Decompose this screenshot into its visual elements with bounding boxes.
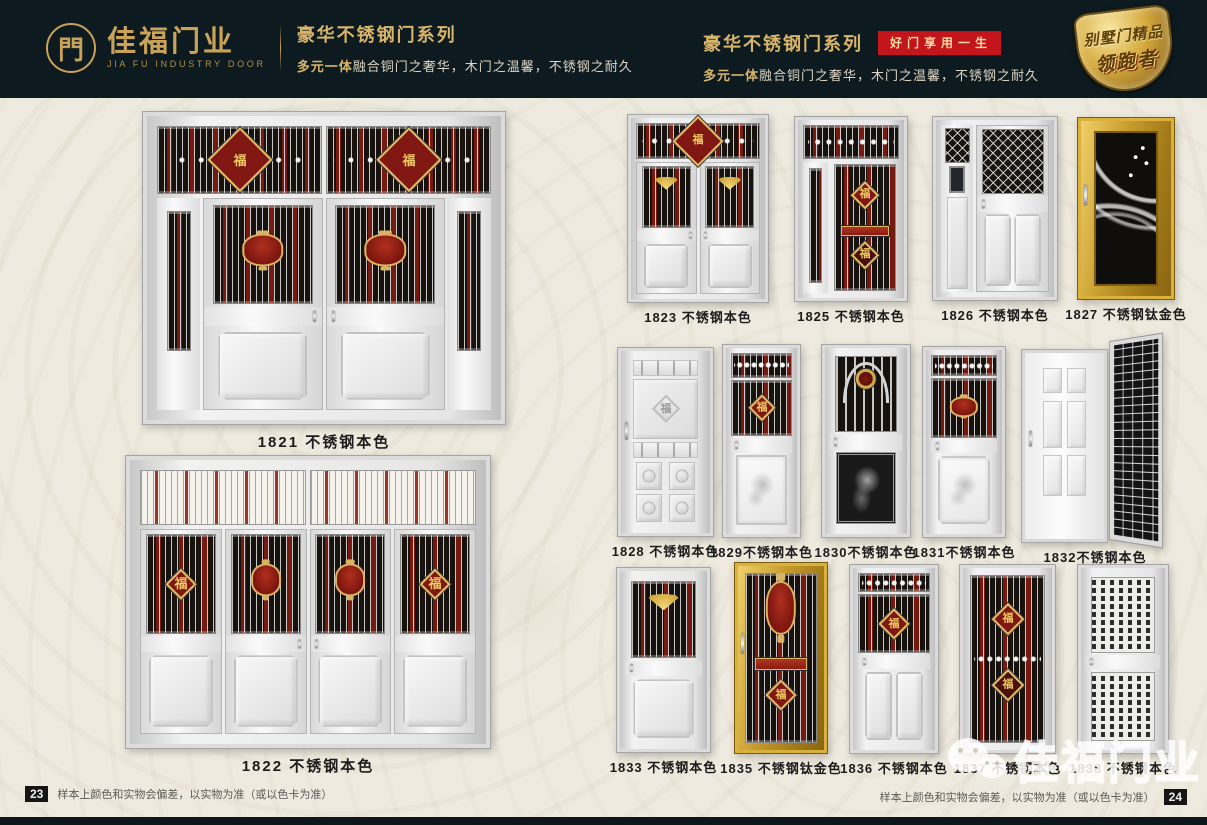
door-image-1829: 福 — [723, 345, 800, 537]
wechat-icon — [948, 738, 1012, 792]
series-subtitle-right: 多元一体融合铜门之奢华，木门之温馨，不锈钢之耐久 — [703, 65, 1039, 84]
disclaimer-left: 样本上颜色和实物会偏差，以实物为准（或以色卡为准） — [57, 786, 332, 802]
door-card-1823: 福 1823 不锈钢本色 — [628, 115, 768, 326]
footer-left: 23 样本上颜色和实物会偏差，以实物为准（或以色卡为准） — [25, 786, 332, 802]
door-label-1830: 1830不锈钢本色 — [815, 542, 918, 561]
door-card-1831: 1831不锈钢本色 — [923, 347, 1005, 561]
door-1827 — [1078, 118, 1174, 299]
catalog-page: 門 佳福门业 JIA FU INDUSTRY DOOR 豪华不锈钢门系列 多元一… — [0, 0, 1207, 825]
door-leaf-open-screen — [1110, 334, 1163, 548]
door-1823: 福 — [628, 115, 768, 302]
door-card-1832: 1832不锈钢本色 — [1022, 342, 1168, 566]
door-1829: 福 — [723, 345, 800, 537]
door-label-1829: 1829不锈钢本色 — [710, 542, 813, 561]
door-1826 — [933, 117, 1057, 300]
door-card-1827: 1827 不锈钢钛金色 — [1078, 118, 1174, 323]
series-subtitle-left-em: 多元一体 — [297, 59, 353, 74]
door-card-1830: 1830不锈钢本色 — [822, 345, 910, 561]
series-title-row: 豪华不锈钢门系列 好门享用一生 — [703, 30, 1039, 56]
bottom-bar — [0, 817, 1207, 825]
series-subtitle-left-rest: 融合铜门之奢华，木门之温馨，不锈钢之耐久 — [353, 59, 633, 74]
door-1830 — [822, 345, 910, 537]
series-subtitle-right-rest: 融合铜门之奢华，木门之温馨，不锈钢之耐久 — [759, 68, 1039, 83]
brand-block: 門 佳福门业 JIA FU INDUSTRY DOOR 豪华不锈钢门系列 多元一… — [46, 21, 633, 75]
door-image-1822: 福 福 — [126, 456, 490, 748]
door-1831 — [923, 347, 1005, 537]
door-image-1821: 福 福 — [143, 112, 505, 424]
door-1825: 福福 — [795, 117, 907, 301]
slogan-badge: 好门享用一生 — [878, 31, 1001, 55]
door-image-1830 — [822, 345, 910, 537]
door-label-1822: 1822 不锈钢本色 — [242, 755, 375, 776]
door-card-1822: 福 福 1822 不锈钢本色 — [126, 456, 490, 776]
door-label-1831: 1831不锈钢本色 — [913, 542, 1016, 561]
door-image-1836: 福 — [850, 565, 938, 753]
door-label-1832: 1832不锈钢本色 — [1044, 547, 1147, 566]
brand-name-en: JIA FU INDUSTRY DOOR — [107, 59, 266, 69]
door-image-1823: 福 — [628, 115, 768, 302]
watermark: 佳福门业 — [948, 738, 1202, 792]
logo-door-glyph: 門 — [58, 30, 84, 67]
catalog-body: 23 样本上颜色和实物会偏差，以实物为准（或以色卡为准） 样本上颜色和实物会偏差… — [0, 98, 1207, 817]
door-1836: 福 — [850, 565, 938, 753]
door-label-1826: 1826 不锈钢本色 — [941, 305, 1049, 324]
door-1821: 福 福 — [143, 112, 505, 424]
door-leaf-closed — [1022, 350, 1107, 542]
door-card-1826: 1826 不锈钢本色 — [933, 117, 1057, 324]
award-shield-badge: 别墅门精品 领跑者 — [1054, 0, 1196, 102]
door-card-1821: 福 福 1821 不锈钢本色 — [143, 112, 505, 452]
door-image-1826 — [933, 117, 1057, 300]
series-title-left: 豪华不锈钢门系列 — [297, 21, 633, 47]
door-card-1835: 福 1835 不锈钢钛金色 — [735, 563, 827, 777]
door-label-1836: 1836 不锈钢本色 — [840, 758, 948, 777]
door-image-1835: 福 — [735, 563, 827, 753]
door-1828: 福 — [618, 348, 713, 536]
door-1835: 福 — [735, 563, 827, 753]
door-1822: 福 福 — [126, 456, 490, 748]
brand-name: 佳福门业 — [107, 27, 266, 57]
door-image-1833 — [617, 568, 710, 752]
door-label-1833: 1833 不锈钢本色 — [610, 757, 718, 776]
door-image-1828: 福 — [618, 348, 713, 536]
door-image-1825: 福福 — [795, 117, 907, 301]
series-block-left: 豪华不锈钢门系列 多元一体融合铜门之奢华，木门之温馨，不锈钢之耐久 — [297, 21, 633, 75]
series-subtitle-left: 多元一体融合铜门之奢华，木门之温馨，不锈钢之耐久 — [297, 56, 633, 75]
door-image-1832 — [1022, 342, 1168, 542]
page-number-left: 23 — [25, 786, 48, 802]
series-title-right: 豪华不锈钢门系列 — [703, 30, 863, 56]
door-label-1823: 1823 不锈钢本色 — [644, 307, 752, 326]
series-block-right: 豪华不锈钢门系列 好门享用一生 多元一体融合铜门之奢华，木门之温馨，不锈钢之耐久 — [703, 30, 1039, 84]
door-card-1829: 福 1829不锈钢本色 — [723, 345, 800, 561]
door-image-1837: 福福 — [960, 565, 1055, 753]
door-image-1831 — [923, 347, 1005, 537]
door-1837: 福福 — [960, 565, 1055, 753]
door-label-1828: 1828 不锈钢本色 — [612, 541, 720, 560]
door-1838 — [1078, 565, 1168, 753]
door-1833 — [617, 568, 710, 752]
door-image-1838 — [1078, 565, 1168, 753]
door-image-1827 — [1078, 118, 1174, 299]
door-label-1835: 1835 不锈钢钛金色 — [720, 758, 842, 777]
header-bar: 門 佳福门业 JIA FU INDUSTRY DOOR 豪华不锈钢门系列 多元一… — [0, 0, 1207, 98]
door-label-1821: 1821 不锈钢本色 — [258, 431, 391, 452]
brand-names: 佳福门业 JIA FU INDUSTRY DOOR — [107, 27, 266, 69]
door-card-1828: 福 1828 不锈钢本色 — [618, 348, 713, 560]
series-subtitle-right-em: 多元一体 — [703, 68, 759, 83]
door-label-1827: 1827 不锈钢钛金色 — [1065, 304, 1187, 323]
door-card-1833: 1833 不锈钢本色 — [617, 568, 710, 776]
door-label-1825: 1825 不锈钢本色 — [797, 306, 905, 325]
door-card-1825: 福福 1825 不锈钢本色 — [795, 117, 907, 325]
door-card-1836: 福 1836 不锈钢本色 — [850, 565, 938, 777]
brand-logo-icon: 門 — [46, 23, 96, 73]
divider — [280, 24, 281, 72]
watermark-text: 佳福门业 — [1014, 738, 1202, 791]
